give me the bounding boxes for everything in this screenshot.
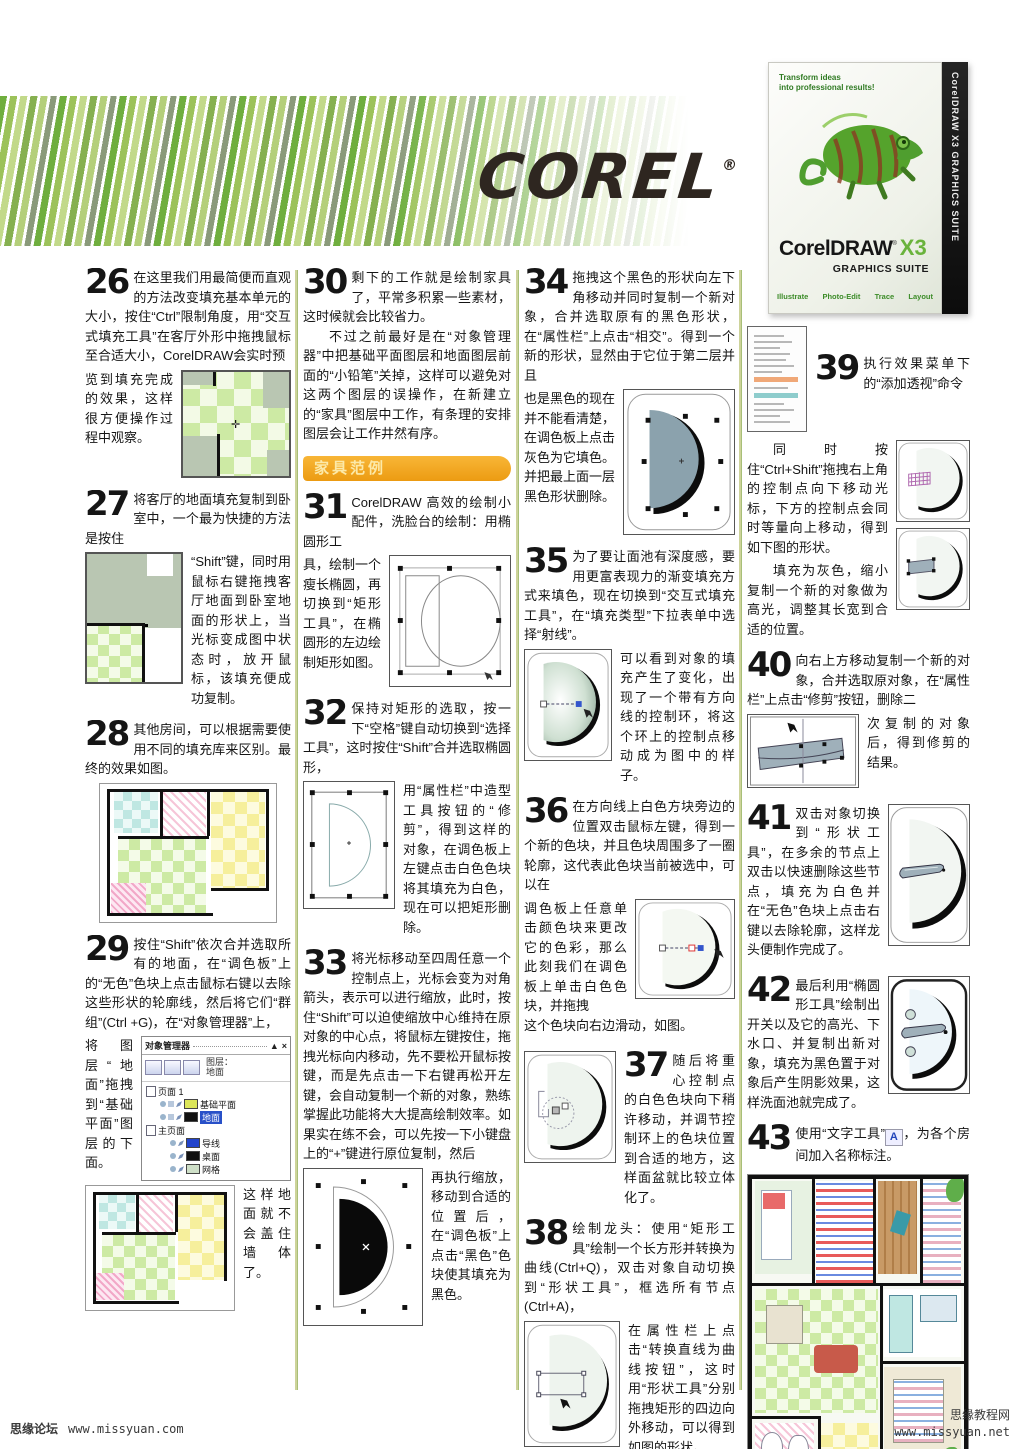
step-38-text-wrap: 在属性栏上点击“转换直线为曲线按钮”，这时用“形状工具”分别拖拽矩形的四边向外移… <box>628 1321 735 1449</box>
decor <box>816 1181 873 1283</box>
step-39-text-3: 填充为灰色，缩小复制一个新的对象做为高光，调整其长宽到合适的位置。 <box>747 561 888 639</box>
step-31-text-wrap: 具，绘制一个瘦长椭圆，再切换到“矩形工具”，在椭圆形的左边绘制矩形如图。 <box>303 555 381 672</box>
column-divider <box>739 270 742 1390</box>
step-42: 42最后利用“椭圆形工具”绘制出开关以及它的高光、下水口、并复制出新对象，填充为… <box>747 972 970 1113</box>
chameleon-illustration <box>783 97 928 215</box>
footer-right-url: www.missyuan.net <box>894 1424 1010 1441</box>
step-34-text-wrap: 也是黑色的现在并不能看清楚，在调色板上点击灰色为它填色。并把最上面一层黑色形状删… <box>524 389 615 506</box>
step-26-number: 26 <box>85 268 133 297</box>
step-35-text-wrap: 可以看到对象的填充产生了变化，出现了一个带有方向线的控制环，将这个环上的控制点移… <box>620 649 735 786</box>
step-26: 26在这里我们用最简便而直观的方法改变填充基本单元的大小，按住“Ctrl”限制角… <box>85 268 291 478</box>
column-2: 30剩下的工作就是绘制家具了，平常多积累一些素材，这时候就会比较省力。 不过之前… <box>303 268 511 1338</box>
footer-left-url: www.missyuan.com <box>68 1422 184 1436</box>
step-33: 33将光标移动至四周任意一个控制点上，光标会变为对角箭头，表示可以进行缩放，此时… <box>303 949 511 1326</box>
step-39-paragraphs: 同时按住“Ctrl+Shift”拖拽右上角的控制点向下移动光标，下方的控制点会同… <box>747 440 888 639</box>
step-27-number: 27 <box>85 490 133 519</box>
box-spine: CorelDRAW X3 GRAPHICS SUITE <box>942 62 968 314</box>
footer-right-site: 思缘教程网 <box>894 1407 1010 1424</box>
decor <box>748 1175 968 1179</box>
footer-left: 思缘论坛www.missyuan.com <box>10 1420 184 1437</box>
decor <box>224 1192 227 1281</box>
step-28-number: 28 <box>85 720 133 749</box>
ellipse-rectangle-drawing <box>389 555 511 687</box>
step-42-number: 42 <box>747 976 795 1005</box>
coreldraw-x3-box: Transform ideas into professional result… <box>768 62 968 314</box>
pencil-icon[interactable] <box>178 1166 184 1172</box>
step-29-number: 29 <box>85 935 133 964</box>
step-35-number: 35 <box>524 547 572 576</box>
tree-row-guides[interactable]: 导线 <box>146 1137 288 1150</box>
decor <box>142 623 145 682</box>
tree-row-page1[interactable]: 页面 1 <box>146 1085 288 1098</box>
object-manager-titlebar: 对象管理器 ▲ × <box>142 1037 290 1055</box>
radial-fill-drawing <box>524 649 612 761</box>
decor <box>266 789 269 891</box>
step-30: 30剩下的工作就是绘制家具了，平常多积累一些素材，这时候就会比较省力。 不过之前… <box>303 268 511 444</box>
column-4: 39执行效果菜单下的“添加透视”命令 同时按住“Ctrl+Shift”拖拽右上角… <box>747 322 970 1449</box>
registered-mark: ® <box>721 156 738 174</box>
step-35: 35为了要让面池有深度感，要用更富表现力的渐变填充方式来填色，现在切换到“交互式… <box>524 547 735 785</box>
feature-trace: Trace <box>875 292 895 301</box>
feature-layout: Layout <box>908 292 933 301</box>
tree-row-floor[interactable]: 地面 <box>146 1111 288 1124</box>
printer-icon[interactable] <box>168 1114 174 1120</box>
step-41: 41双击对象切换到“形状工具”，在多余的节点上双击以快速删除这些节点，填充为白色… <box>747 800 970 960</box>
step-43-number: 43 <box>747 1124 795 1153</box>
decor <box>766 1305 803 1344</box>
step-31-number: 31 <box>303 493 351 522</box>
step-36: 36在方向线上白色方块旁边的位置双击鼠标左键，得到一个新的色块，并且色块周围多了… <box>524 797 735 1035</box>
decor <box>263 372 289 408</box>
feature-photo-edit: Photo-Edit <box>822 292 860 301</box>
step-29-tail-text: 这样地面就不会盖住墙体了。 <box>243 1185 291 1283</box>
step-37-text: 37随后将重心控制点的白色色块向下稍许移动，并调节控制环上的色块位置到合适的地方… <box>624 1051 735 1207</box>
step-30-text-2: 不过之前最好是在“对象管理器”中把基础平面图层和地面图层前面的“小铅笔”关掉，这… <box>303 327 511 444</box>
effects-menu-screenshot <box>747 326 807 432</box>
floorplan-29-image <box>85 1185 235 1311</box>
step-36-tail-text: 这个色块向右边滑动，如图。 <box>524 1016 735 1036</box>
floorplan-28-image <box>99 783 277 923</box>
layer-color-swatch <box>186 1151 200 1161</box>
object-manager-panel: 对象管理器 ▲ × 图层： 地面 <box>141 1036 291 1181</box>
step-36-text-wrap: 调色板上任意单击颜色块来更改它的色彩，那么此刻我们在调色板上单击白色色块，并拖拽 <box>524 899 627 1016</box>
decor <box>763 1193 785 1209</box>
black-basin-drawing <box>303 1168 423 1326</box>
decor <box>880 1283 883 1449</box>
decor <box>818 1416 821 1449</box>
faucet-rect-drawing <box>524 1321 620 1447</box>
layer-view-button[interactable] <box>183 1060 200 1075</box>
decor <box>748 1283 880 1286</box>
decor <box>87 623 143 626</box>
decor <box>873 1175 876 1284</box>
object-manager-toolbar: 图层： 地面 <box>142 1055 290 1082</box>
step-40-text-wrap: 次复制的对象后，得到修剪的结果。 <box>867 714 970 773</box>
step-39-text: 39执行效果菜单下的“添加透视”命令 <box>815 326 970 393</box>
decor <box>880 1361 968 1364</box>
step-43-text: 使用“文字工具” <box>795 1126 885 1141</box>
decor <box>111 883 146 913</box>
decor <box>107 789 269 792</box>
tree-row-grid[interactable]: 网格 <box>146 1163 288 1176</box>
page-icon <box>146 1086 156 1097</box>
layer-color-swatch <box>186 1164 200 1174</box>
active-layer-label: 图层： 地面 <box>206 1058 233 1078</box>
step-28: 28其他房间，可以根据需要使用不同的填充库来区别。最终的效果如图。 <box>85 720 291 923</box>
decor <box>107 789 110 915</box>
decor <box>93 1301 179 1304</box>
finished-sink-drawing <box>888 976 970 1094</box>
decor <box>145 624 148 627</box>
decor <box>211 790 266 889</box>
step-39-number: 39 <box>815 354 863 383</box>
step-32: 32保持对矩形的选取，按一下“空格”键自动切换到“选择工具”，这时按住“Shif… <box>303 699 511 937</box>
pencil-icon[interactable] <box>178 1140 184 1146</box>
pencil-icon[interactable] <box>178 1153 184 1159</box>
decor <box>178 1193 224 1280</box>
step-34: 34拖拽这个黑色的形状向左下角移动并同时复制一个新对象，合并选取原有的黑色形状，… <box>524 268 735 535</box>
corel-logo: COREL® <box>475 146 739 208</box>
footer-left-site: 思缘论坛 <box>10 1422 58 1436</box>
step-39-images <box>896 440 970 610</box>
pencil-icon[interactable] <box>176 1114 182 1120</box>
step-41-number: 41 <box>747 804 795 833</box>
step-36-number: 36 <box>524 797 572 826</box>
column-divider <box>516 270 519 1390</box>
furniture-example-banner: 家具范例 <box>303 456 511 481</box>
step-39-text-2: 同时按住“Ctrl+Shift”拖拽右上角的控制点向下移动光标，下方的控制点会同… <box>747 440 888 557</box>
decor <box>99 1194 135 1229</box>
eye-icon[interactable] <box>160 1114 166 1120</box>
column-3: 34拖拽这个黑色的形状向左下角移动并同时复制一个新对象，合并选取原有的黑色形状，… <box>524 268 735 1449</box>
floorplan-27-image <box>85 552 183 684</box>
teal-menu-item[interactable] <box>754 393 798 398</box>
step-26-text-wrap: 览到填充完成的效果，这样很方便操作过程中观察。 <box>85 370 173 448</box>
column-divider <box>295 270 298 1390</box>
step-30-number: 30 <box>303 268 351 297</box>
decor <box>139 1194 173 1231</box>
step-29-text-wrap: 将图层“地面”拖拽到“基础平面”图层的下面。 <box>85 1036 133 1173</box>
trimmed-shape-drawing <box>303 781 395 909</box>
layer-manager-button[interactable] <box>145 1060 162 1075</box>
step-32-number: 32 <box>303 699 351 728</box>
footer-right: 思缘教程网 www.missyuan.net <box>894 1407 1010 1441</box>
box-suite-label: GRAPHICS SUITE <box>833 263 929 275</box>
gray-basin-drawing <box>623 389 735 535</box>
decor <box>211 888 269 891</box>
decor <box>93 1192 226 1195</box>
pencil-icon[interactable] <box>176 1101 182 1107</box>
trimmed-faucet-drawing <box>747 714 859 788</box>
center-node-drawing <box>524 1051 616 1163</box>
feature-illustrate: Illustrate <box>777 292 808 301</box>
step-42-text: 42最后利用“椭圆形工具”绘制出开关以及它的高光、下水口、并复制出新对象，填充为… <box>747 976 880 1113</box>
text-tool-icon: A <box>885 1129 903 1146</box>
close-icon[interactable]: × <box>282 1041 287 1051</box>
finished-faucet-drawing <box>888 804 970 946</box>
step-32-text-wrap: 用“属性栏”中造型工具按钮的“修剪”，得到这样的对象，在调色板上左键点击白色色块… <box>403 781 511 937</box>
step-38-number: 38 <box>524 1219 572 1248</box>
step-38: 38绘制龙头：使用“矩形工具”绘制一个长方形并转换为曲线(Ctrl+Q)，双击对… <box>524 1219 735 1449</box>
decor <box>217 434 220 476</box>
step-37: 37随后将重心控制点的白色色块向下稍许移动，并调节控制环上的色块位置到合适的地方… <box>524 1047 735 1207</box>
step-34-number: 34 <box>524 268 572 297</box>
step-39: 39执行效果菜单下的“添加透视”命令 同时按住“Ctrl+Shift”拖拽右上角… <box>747 322 970 639</box>
layer-color-swatch <box>186 1138 200 1148</box>
printer-icon[interactable] <box>168 1101 174 1107</box>
step-29: 29按住“Shift”依次合并选取所有的地面，在“调色板”上的“无色”色块上点击… <box>85 935 291 1311</box>
step-40-number: 40 <box>747 651 795 680</box>
decor <box>136 1192 139 1232</box>
eye-icon[interactable] <box>160 1101 166 1107</box>
decor <box>267 450 289 476</box>
step-33-text-wrap: 再执行缩放，移动到合适的位置后，在“调色板”上点击“黑色”色块使其填充为黑色。 <box>431 1168 511 1305</box>
decor <box>207 789 210 836</box>
step-33-number: 33 <box>303 949 351 978</box>
decor <box>880 1283 968 1286</box>
decor <box>889 1295 913 1353</box>
perspective-highlight-drawing <box>896 440 970 522</box>
decor <box>118 836 210 839</box>
corel-logo-text: COREL <box>474 140 724 213</box>
step-27-text-wrap: “Shift”键，同时用鼠标右键拖拽客厅地面到卧室地面的形状上，当光标变成图中状… <box>191 552 291 708</box>
decor <box>183 372 213 385</box>
step-43: 43使用“文字工具”A，为各个房间加入名称标注。 <box>747 1124 970 1449</box>
decor <box>920 1295 957 1322</box>
object-manager-title: 对象管理器 <box>145 1039 190 1052</box>
decor <box>213 372 216 386</box>
decor <box>160 789 163 836</box>
tree-row-desktop[interactable]: 桌面 <box>146 1150 288 1163</box>
decor <box>748 1175 752 1449</box>
box-front: Transform ideas into professional result… <box>768 62 942 314</box>
decor <box>102 1232 176 1235</box>
decor <box>814 1345 858 1373</box>
box-tagline: Transform ideas into professional result… <box>779 73 875 93</box>
gray-highlight-drawing <box>896 528 970 610</box>
step-41-text: 41双击对象切换到“形状工具”，在多余的节点上双击以快速删除这些节点，填充为白色… <box>747 804 880 960</box>
decor <box>748 1416 818 1419</box>
eye-icon[interactable] <box>170 1166 176 1172</box>
box-spine-text: CorelDRAW X3 GRAPHICS SUITE <box>950 72 960 242</box>
tree-row-base-plane[interactable]: 基础平面 <box>146 1098 288 1111</box>
decor <box>114 792 158 833</box>
decor <box>163 792 205 836</box>
layer-color-swatch <box>184 1099 198 1109</box>
collapse-icon[interactable]: ▲ <box>270 1041 279 1051</box>
object-manager-tree: 页面 1 基础平面 地面 主页面 导线 桌面 网格 <box>142 1082 290 1180</box>
decor <box>946 1178 964 1203</box>
decor <box>812 1175 815 1284</box>
column-1: 26在这里我们用最简便而直观的方法改变填充基本单元的大小，按住“Ctrl”限制角… <box>85 268 291 1323</box>
decor <box>93 1192 96 1302</box>
step-31: 31CorelDRAW 高效的绘制小配件，洗脸台的绘制：用椭圆形工 具，绘制一个… <box>303 493 511 688</box>
decor <box>87 623 142 682</box>
page-icon <box>146 1125 156 1136</box>
eye-icon[interactable] <box>170 1140 176 1146</box>
cursor-glyph: ✛ <box>231 418 240 431</box>
floorplan-26-image: ✛ <box>181 370 291 478</box>
decor <box>96 1273 124 1300</box>
decor <box>821 1423 878 1449</box>
tree-row-master[interactable]: 主页面 <box>146 1124 288 1137</box>
step-40: 40向右上方移动复制一个新的对象，合并选取原对象，在“属性栏”上点击“修剪”按钮… <box>747 651 970 788</box>
edit-across-layers-button[interactable] <box>164 1060 181 1075</box>
decor <box>107 913 213 916</box>
box-feature-list: Illustrate Photo-Edit Trace Layout <box>777 292 933 301</box>
color-node-drawing <box>635 899 735 999</box>
step-37-number: 37 <box>624 1051 672 1080</box>
decor <box>183 436 217 476</box>
highlighted-menu-item[interactable] <box>754 377 798 382</box>
magazine-page: COREL® Transform ideas into professional… <box>0 0 1024 1449</box>
decor <box>175 1192 178 1232</box>
decor <box>920 1175 923 1284</box>
decor <box>147 554 173 576</box>
box-title: CorelDRAW®X3 <box>779 235 927 261</box>
layer-color-swatch <box>184 1112 198 1122</box>
step-27: 27将客厅的地面填充复制到卧室中，一个最为快捷的方法是按住 “Shift”键，同… <box>85 490 291 709</box>
decor <box>193 1045 267 1047</box>
eye-icon[interactable] <box>170 1153 176 1159</box>
